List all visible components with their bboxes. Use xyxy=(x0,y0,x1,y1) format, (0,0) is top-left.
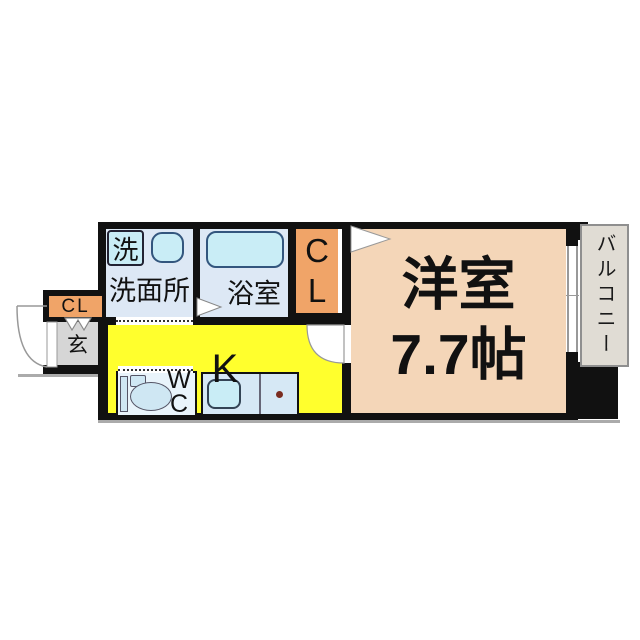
main-room-label: 洋室 7.7帖 xyxy=(351,229,566,413)
main-room-name: 洋室 xyxy=(402,251,516,321)
main-room-size: 7.7帖 xyxy=(390,321,526,391)
toilet-label: W C xyxy=(164,367,194,417)
closet-entrance-label: CL xyxy=(49,296,102,317)
floorplan-canvas: 洗 洗面所 浴室 C L CL 玄 K W C 洋室 7.7帖 バルコニー xyxy=(0,0,640,640)
washroom-label: 洗面所 xyxy=(106,270,193,306)
entrance-door-threshold xyxy=(47,322,57,367)
washer-label: 洗 xyxy=(107,230,144,266)
balcony-label: バルコニー xyxy=(580,224,629,367)
entrance-label: 玄 xyxy=(57,322,98,365)
bathroom-label: 浴室 xyxy=(210,274,298,308)
closet-main-label: C L xyxy=(296,229,338,313)
entrance-door-swing-icon xyxy=(17,306,47,367)
kitchen-label: K xyxy=(108,325,342,413)
